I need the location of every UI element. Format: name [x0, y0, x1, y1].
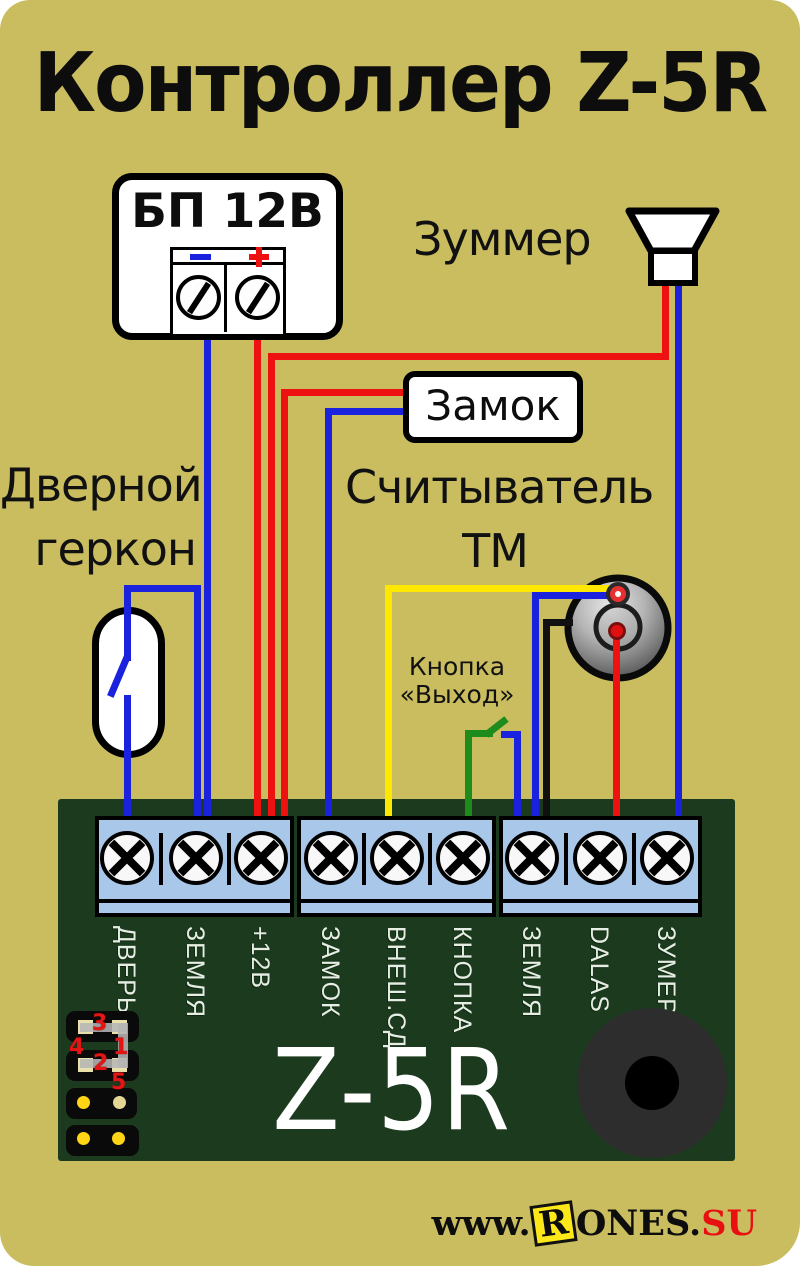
- terminal-divider: [632, 833, 636, 885]
- psu-minus-mark: [190, 254, 211, 260]
- screw-terminal-zemlya1[interactable]: [169, 831, 223, 885]
- terminal-divider: [227, 833, 231, 885]
- psu-screw-minus: [176, 275, 221, 320]
- buzzer-icon: [600, 195, 740, 295]
- jumper-pin-number-2: 2: [93, 1051, 108, 1076]
- wire-lock-blue-vertical: [325, 408, 332, 818]
- onboard-buzzer-hole: [625, 1056, 679, 1110]
- screw-terminal-zumer[interactable]: [640, 831, 694, 885]
- wire-12v-to-buzzer-vertical: [268, 353, 275, 818]
- wire-psu-minus: [204, 330, 211, 818]
- diagram-canvas: БП 12В Замок ДВЕРЬ ЗЕМЛЯ +12В ЗАМОК ВНЕШ…: [0, 0, 800, 1266]
- jumper-pin-number-5: 5: [111, 1070, 126, 1095]
- terminal-label-dver: ДВЕРЬ: [111, 926, 140, 1014]
- watermark-ones: ONES.: [576, 1203, 701, 1244]
- exit-button-label-line1: Кнопка: [388, 652, 526, 681]
- wire-reed-bottom-contact: [124, 695, 131, 818]
- reader-led-ring: [610, 586, 626, 602]
- terminal-label-zemlya2: ЗЕМЛЯ: [516, 926, 545, 1018]
- terminal-label-knopka: КНОПКА: [447, 926, 476, 1033]
- terminal-divider: [362, 833, 366, 885]
- jumper-pin-number-4: 4: [69, 1035, 84, 1060]
- exit-button-label-line2: «Выход»: [388, 680, 526, 709]
- watermark-www: www.: [432, 1203, 531, 1244]
- lock-label: Замок: [403, 381, 583, 430]
- reader-led-icon: [606, 582, 630, 606]
- wire-lock-blue-horizontal: [325, 408, 410, 415]
- jumper-hole: [77, 1096, 90, 1109]
- screw-terminal-dalas[interactable]: [573, 831, 627, 885]
- screw-terminal-dver[interactable]: [100, 831, 154, 885]
- watermark-su: SU: [701, 1203, 757, 1244]
- psu-label: БП 12В: [112, 184, 343, 239]
- psu-strip-divider: [173, 262, 283, 265]
- watermark: www.RONES.SU: [432, 1203, 757, 1244]
- terminal-label-zumer: ЗУМЕР: [651, 926, 680, 1016]
- wire-reed-loop-vertical: [194, 585, 201, 818]
- jumper-hole: [113, 1096, 126, 1109]
- screw-terminal-12v[interactable]: [234, 831, 288, 885]
- wire-reed-loop-horizontal: [124, 585, 201, 592]
- reed-label-line2: геркон: [0, 522, 196, 576]
- reader-label-line2: ТМ: [345, 524, 645, 578]
- terminal-divider: [428, 833, 432, 885]
- reader-led-core: [615, 591, 621, 597]
- terminal-label-zamok: ЗАМОК: [315, 926, 344, 1018]
- reader-label-line1: Считыватель: [345, 460, 645, 514]
- wire-lock-red-horizontal: [281, 389, 410, 396]
- psu-screw-divider: [224, 265, 227, 332]
- buzzer-label: Зуммер: [413, 212, 591, 266]
- wire-button-green-vertical: [465, 730, 472, 818]
- wire-reader-led-blue-vertical: [532, 592, 539, 818]
- psu-plus-mark-v: [256, 247, 262, 267]
- wire-reader-red: [613, 630, 620, 818]
- wire-reader-black-vertical: [543, 619, 550, 818]
- screw-terminal-zamok[interactable]: [304, 831, 358, 885]
- wire-buzzer-blue: [675, 278, 682, 818]
- reader-center-contact: [608, 622, 626, 640]
- wire-psu-plus: [254, 330, 261, 818]
- terminal-label-dalas: DALAS: [584, 926, 613, 1013]
- page-background: { "title": "Контроллер Z-5R", "psu": { "…: [0, 0, 800, 1266]
- jumper-pin-number-1: 1: [113, 1035, 128, 1060]
- jumper-pin-number-3: 3: [92, 1011, 107, 1036]
- jumper-hole: [112, 1132, 125, 1145]
- onboard-buzzer: [577, 1008, 727, 1158]
- reed-label-line1: Дверной: [0, 458, 196, 512]
- wire-reed-top-contact: [124, 585, 131, 661]
- board-name: Z-5R: [251, 1026, 533, 1156]
- terminal-divider: [159, 833, 163, 885]
- screw-terminal-zemlya2[interactable]: [505, 831, 559, 885]
- screw-terminal-knopka[interactable]: [436, 831, 490, 885]
- wire-buzzer-red-horizontal: [268, 353, 669, 360]
- terminal-divider: [564, 833, 568, 885]
- terminal-label-12v: +12В: [245, 926, 274, 989]
- jumper-hole: [77, 1132, 90, 1145]
- wire-reader-yellow-horizontal: [385, 585, 618, 592]
- psu-screw-plus: [235, 275, 280, 320]
- page-title: Контроллер Z-5R: [28, 36, 772, 131]
- terminal-label-zemlya1: ЗЕМЛЯ: [180, 926, 209, 1018]
- wire-button-blue-vertical: [514, 731, 521, 818]
- wire-12v-to-lock-vertical: [281, 389, 288, 818]
- screw-terminal-vneshsd[interactable]: [370, 831, 424, 885]
- watermark-r-box: R: [529, 1200, 577, 1247]
